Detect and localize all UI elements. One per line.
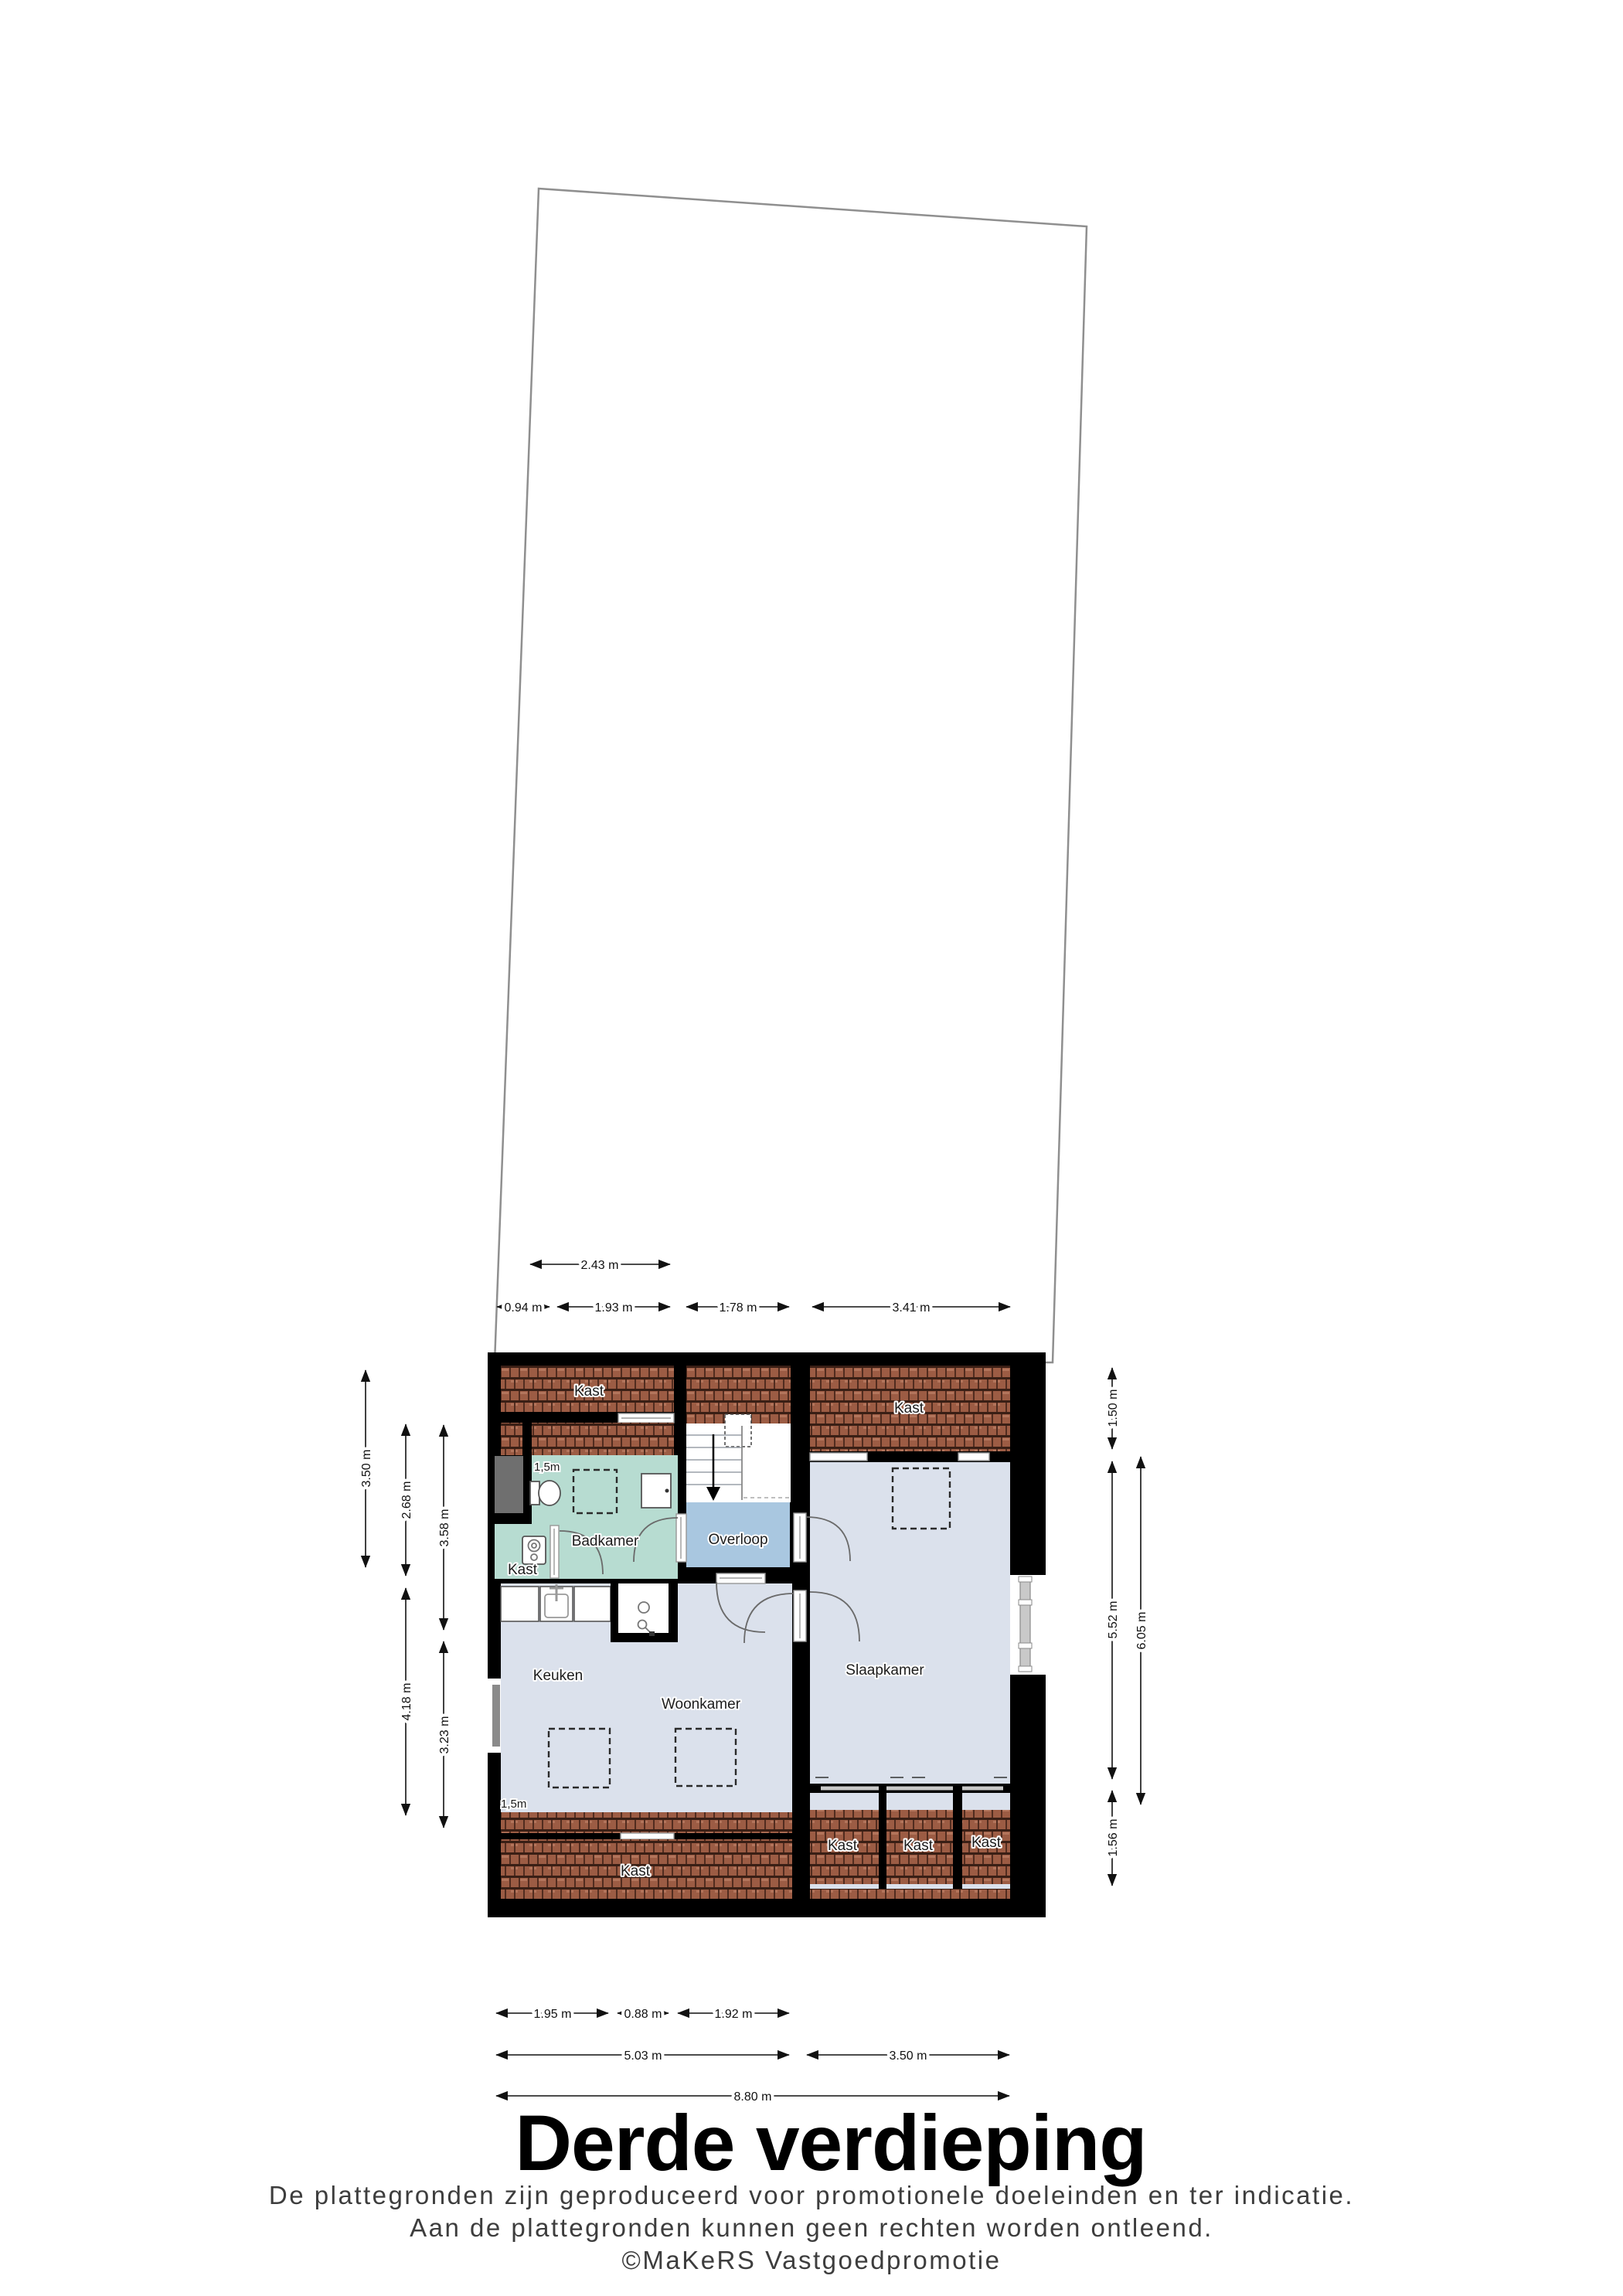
room-slaapkamer bbox=[810, 1462, 1010, 1784]
dimensions-bottom: 1.95 m 0.88 m 1.92 m 5.03 m 3.50 m 8.80 … bbox=[496, 2008, 1009, 2104]
copyright-line: ©MaKeRS Vastgoedpromotie bbox=[0, 2244, 1623, 2277]
dim-right-156: 1.56 m bbox=[1107, 1819, 1120, 1857]
dim-left-358: 3.58 m bbox=[438, 1509, 451, 1547]
dimensions-left: 3.50 m 2.68 m 4.18 m 3.58 m 3.23 m bbox=[360, 1370, 451, 1828]
dim-left-350: 3.50 m bbox=[360, 1450, 373, 1488]
wall-boiler-closet-top bbox=[495, 1513, 532, 1524]
label-kast-top-right: Kast bbox=[894, 1400, 924, 1417]
dim-bottom-503: 5.03 m bbox=[624, 2049, 662, 2063]
label-kast-top-left: Kast bbox=[574, 1383, 604, 1400]
floorplan-page: Kast Kast Badkamer Overloop Kast Keuken … bbox=[0, 0, 1623, 2296]
shower-niche bbox=[611, 1579, 678, 1642]
disclaimer-line-2: Aan de plattegronden kunnen geen rechten… bbox=[0, 2212, 1623, 2244]
disclaimer-line-1: De plattegronden zijn geproduceerd voor … bbox=[0, 2179, 1623, 2212]
closet-attic-bottom-roof-1 bbox=[501, 1812, 792, 1833]
label-overloop: Overloop bbox=[708, 1532, 767, 1548]
stairwell bbox=[686, 1366, 791, 1502]
window-bedroom-top-b bbox=[958, 1453, 989, 1461]
dim-bottom-088: 0.88 m bbox=[624, 2008, 662, 2021]
dim-right-605: 6.05 m bbox=[1135, 1612, 1148, 1650]
dim-bottom-192: 1.92 m bbox=[715, 2008, 753, 2021]
kitchen-counter bbox=[501, 1584, 611, 1621]
dimensions-right: 1.50 m 5.52 m 1.56 m 6.05 m bbox=[1107, 1368, 1148, 1886]
floor-title: Derde verdieping bbox=[0, 2104, 1623, 2182]
plot-outline bbox=[495, 189, 1087, 1362]
dim-left-268: 2.68 m bbox=[400, 1481, 413, 1519]
dim-left-418: 4.18 m bbox=[400, 1683, 413, 1721]
label-height-woonkamer: 1,5m bbox=[501, 1798, 526, 1811]
label-kast-bedroom-3: Kast bbox=[971, 1835, 1002, 1851]
dim-bottom-350: 3.50 m bbox=[890, 2049, 927, 2063]
dim-right-552: 5.52 m bbox=[1107, 1601, 1120, 1639]
floorplan-canvas: Kast Kast Badkamer Overloop Kast Keuken … bbox=[0, 0, 1623, 2296]
label-kast-bottom-left: Kast bbox=[621, 1863, 651, 1879]
wall-divider-tl bbox=[522, 1412, 532, 1525]
stair-roof-hatch bbox=[725, 1414, 751, 1447]
dim-top-178: 1.78 m bbox=[720, 1301, 757, 1315]
label-kast-bedroom-1: Kast bbox=[828, 1838, 858, 1854]
label-woonkamer: Woonkamer bbox=[662, 1696, 741, 1713]
building: Kast Kast Badkamer Overloop Kast Keuken … bbox=[488, 1352, 1046, 1917]
label-kast-boiler: Kast bbox=[508, 1562, 538, 1578]
dim-bottom-195: 1.95 m bbox=[534, 2008, 572, 2021]
dim-left-323: 3.23 m bbox=[438, 1716, 451, 1754]
dim-top-094: 0.94 m bbox=[505, 1301, 543, 1315]
window-bedroom-top-a bbox=[810, 1453, 867, 1461]
window-bottom-left bbox=[621, 1833, 674, 1839]
dim-top-193: 1.93 m bbox=[595, 1301, 633, 1315]
dim-right-150: 1.50 m bbox=[1107, 1390, 1120, 1427]
label-slaapkamer: Slaapkamer bbox=[846, 1662, 924, 1679]
chimney bbox=[495, 1456, 523, 1513]
dim-top-243: 2.43 m bbox=[581, 1259, 619, 1272]
label-kast-bedroom-2: Kast bbox=[903, 1838, 934, 1854]
disclaimer: De plattegronden zijn geproduceerd voor … bbox=[0, 2179, 1623, 2277]
label-height-badkamer: 1,5m bbox=[534, 1461, 560, 1474]
toilet bbox=[530, 1481, 560, 1505]
label-badkamer: Badkamer bbox=[572, 1533, 639, 1549]
window-left bbox=[488, 1679, 501, 1753]
bathroom-cabinet bbox=[641, 1474, 671, 1508]
label-keuken: Keuken bbox=[533, 1668, 583, 1684]
boiler bbox=[522, 1536, 546, 1564]
dim-top-341: 3.41 m bbox=[893, 1301, 931, 1315]
window-bedroom-right bbox=[1010, 1575, 1046, 1675]
